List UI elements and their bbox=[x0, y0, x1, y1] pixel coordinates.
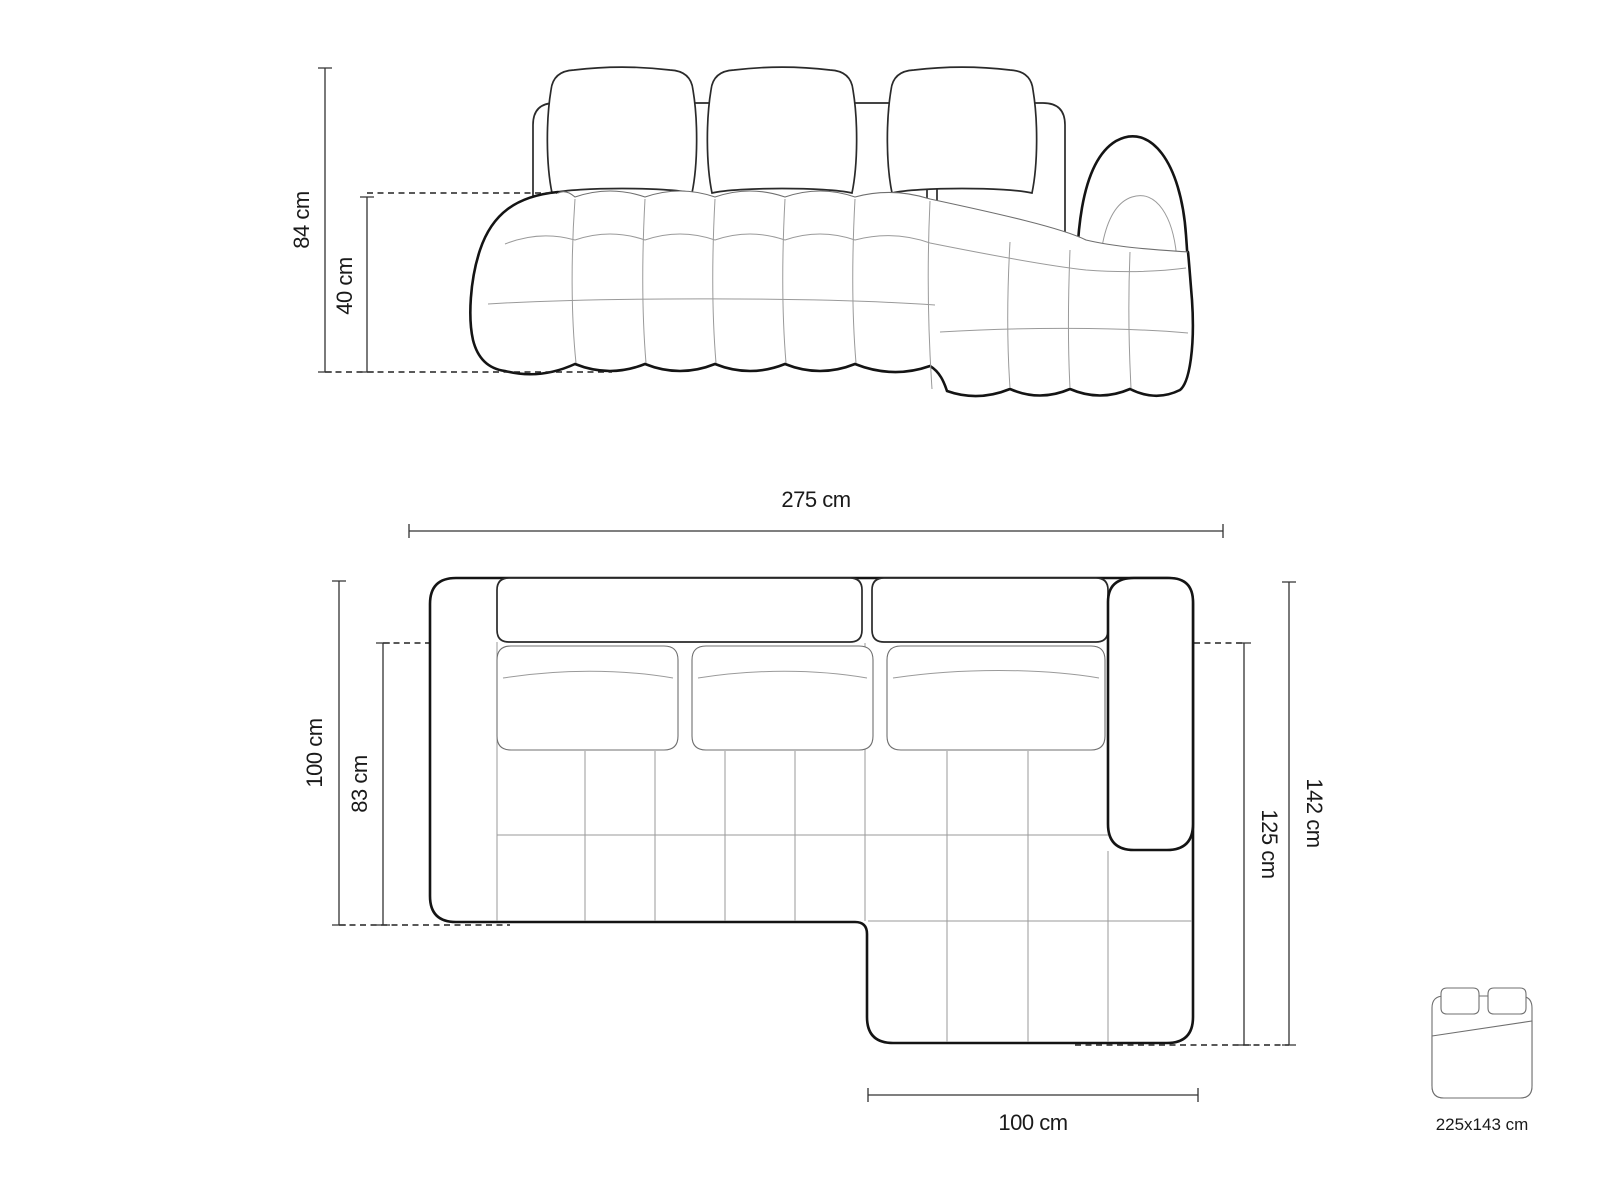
top-dim-seat-depth-label: 83 cm bbox=[347, 755, 372, 812]
top-dim-total-side-depth: 142 cm bbox=[1282, 582, 1327, 1045]
front-dim-total-height: 84 cm bbox=[289, 68, 332, 372]
front-dim-seat-height-label: 40 cm bbox=[332, 257, 357, 314]
top-dim-seat-depth: 83 cm bbox=[347, 643, 390, 925]
sofa-bed-icon: 225x143 cm bbox=[1432, 988, 1532, 1134]
bed-pillow-left bbox=[1441, 988, 1479, 1014]
front-view-drawing: 84 cm 40 cm bbox=[289, 67, 1193, 396]
top-dim-total-width-label: 275 cm bbox=[781, 487, 850, 512]
top-armrest bbox=[1108, 578, 1193, 850]
top-dim-chaise-width: 100 cm bbox=[868, 1088, 1198, 1135]
top-dim-total-depth: 100 cm bbox=[302, 581, 346, 925]
top-dim-total-side-depth-label: 142 cm bbox=[1302, 778, 1327, 847]
bed-size-label: 225x143 cm bbox=[1436, 1115, 1529, 1134]
top-dim-chaise-width-label: 100 cm bbox=[998, 1110, 1067, 1135]
front-pillow-1 bbox=[547, 67, 696, 193]
top-dim-chaise-depth-label: 125 cm bbox=[1257, 809, 1282, 878]
top-backrest-cushion-left bbox=[497, 578, 862, 642]
top-dim-total-width: 275 cm bbox=[409, 487, 1223, 538]
front-dim-total-height-label: 84 cm bbox=[289, 191, 314, 248]
front-dim-seat-height: 40 cm bbox=[332, 197, 374, 372]
top-backrest-cushion-right bbox=[872, 578, 1108, 642]
front-pillow-3 bbox=[887, 67, 1036, 193]
front-pillow-2 bbox=[707, 67, 856, 193]
top-dim-total-depth-label: 100 cm bbox=[302, 718, 327, 787]
top-dim-chaise-depth: 125 cm bbox=[1237, 643, 1282, 1045]
bed-pillow-right bbox=[1488, 988, 1526, 1014]
diagram-page: 84 cm 40 cm bbox=[0, 0, 1600, 1200]
top-view-drawing: 275 cm 100 cm 83 cm 142 cm 125 cm 100 cm bbox=[302, 487, 1327, 1135]
top-seat-cushions bbox=[497, 646, 1105, 750]
sofa-dimension-diagram: 84 cm 40 cm bbox=[0, 0, 1600, 1200]
